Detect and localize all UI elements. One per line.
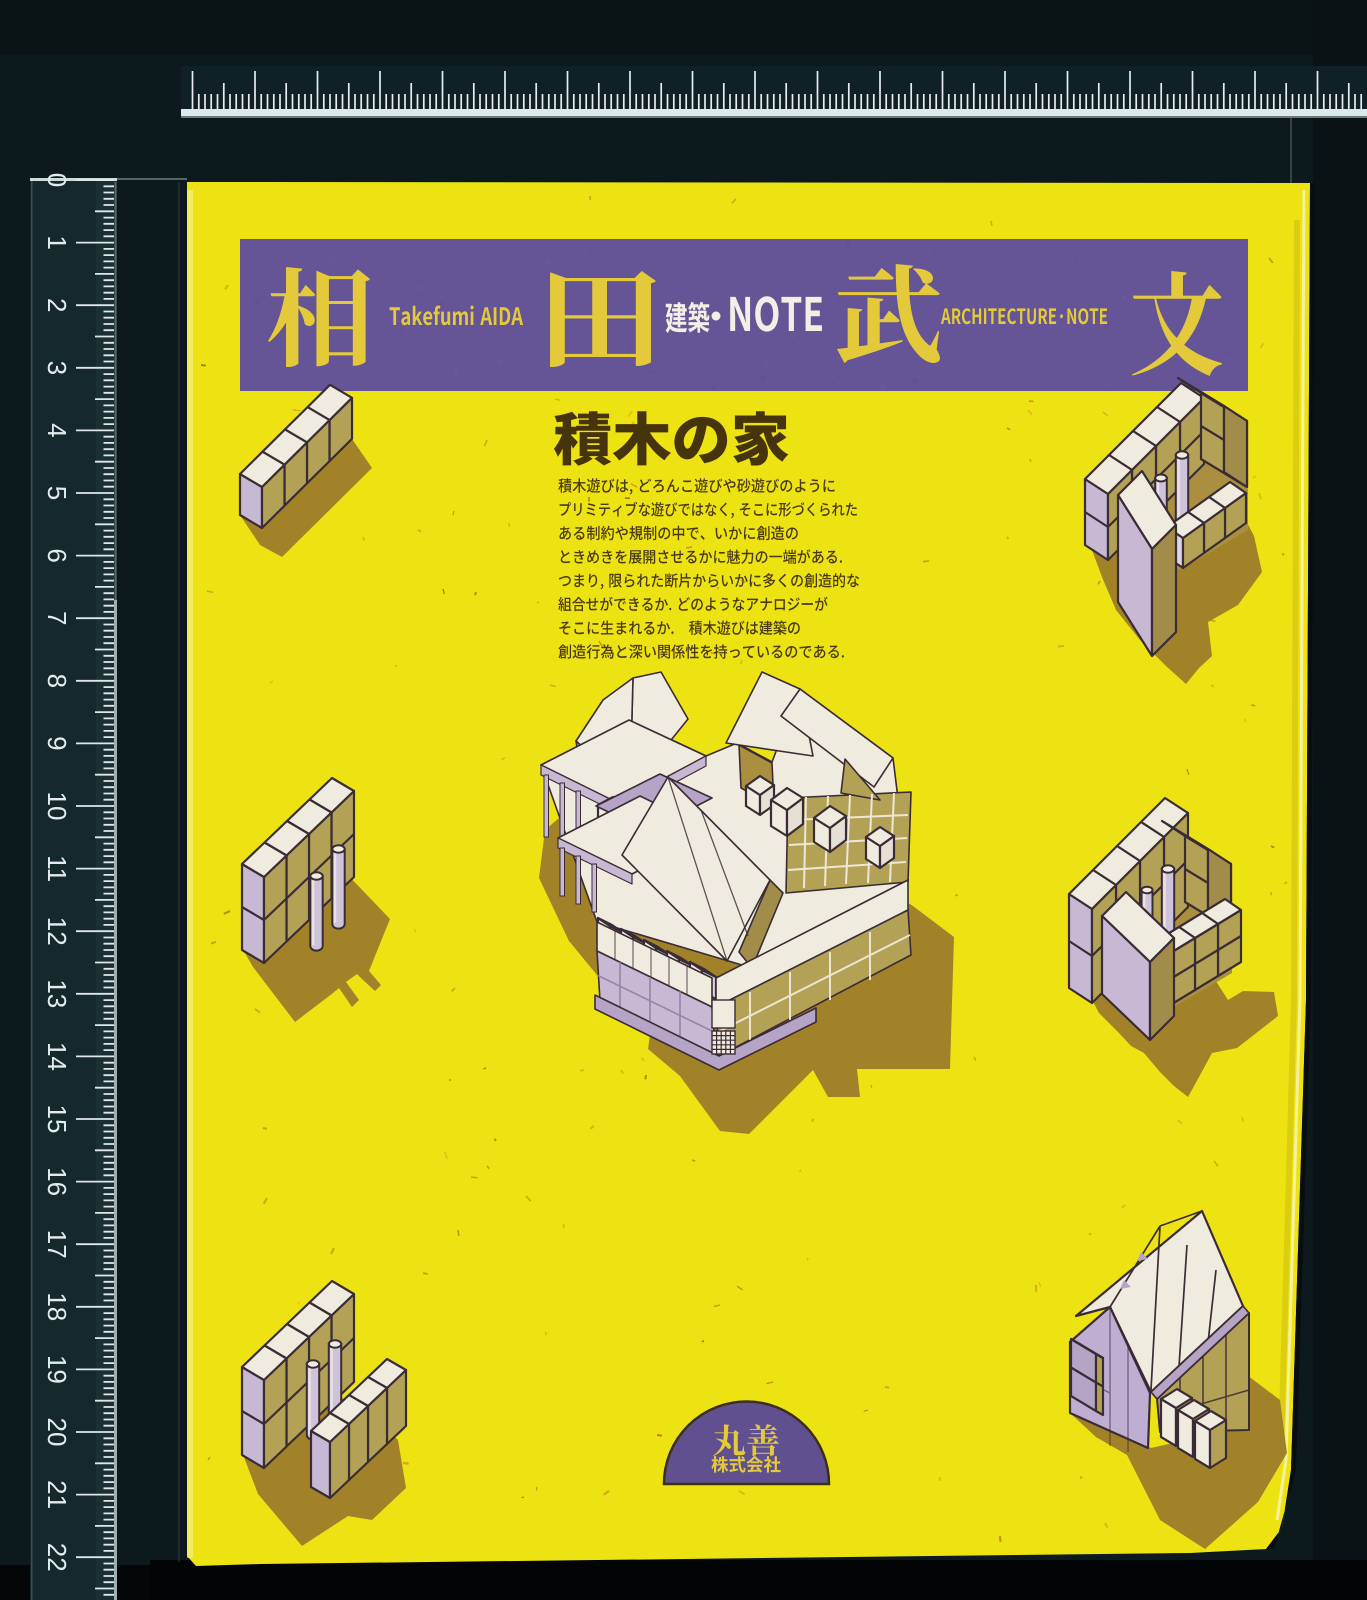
svg-text:17: 17 [42,1230,72,1259]
svg-text:7: 7 [42,611,72,625]
svg-text:10: 10 [42,792,72,821]
svg-text:0: 0 [42,173,72,187]
svg-text:9: 9 [42,736,72,750]
svg-text:16: 16 [42,1167,72,1196]
svg-text:11: 11 [42,855,72,882]
svg-text:13: 13 [42,979,72,1008]
svg-text:5: 5 [42,486,72,500]
svg-text:15: 15 [42,1105,72,1134]
svg-text:4: 4 [42,423,72,437]
svg-text:3: 3 [42,361,72,375]
svg-text:12: 12 [42,917,72,946]
svg-text:22: 22 [42,1543,72,1572]
svg-text:20: 20 [42,1418,72,1447]
svg-text:19: 19 [42,1355,72,1384]
svg-text:14: 14 [42,1042,72,1071]
svg-text:6: 6 [42,548,72,562]
svg-text:18: 18 [42,1292,72,1321]
svg-text:1: 1 [42,235,72,249]
svg-text:2: 2 [42,298,72,312]
svg-text:8: 8 [42,674,72,688]
svg-text:21: 21 [42,1480,72,1509]
